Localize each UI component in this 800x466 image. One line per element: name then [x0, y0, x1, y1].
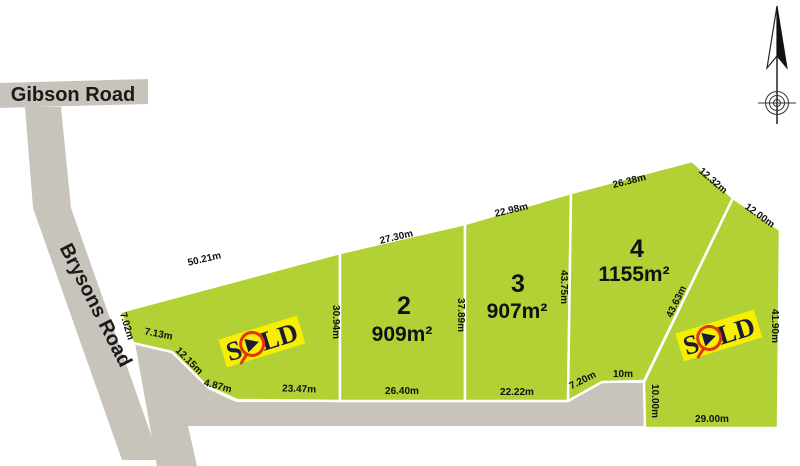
lot-2-area: 909m²	[372, 323, 433, 346]
gibson-road-label: Gibson Road	[11, 84, 135, 106]
lot1-dim-bottom: 23.47m	[282, 383, 316, 395]
lot-2-number: 2	[397, 292, 411, 320]
lot1-dim-top: 50.21m	[187, 250, 223, 268]
lot-3-area: 907m²	[487, 300, 548, 323]
lot5-dim-left: 10.00m	[649, 384, 660, 418]
lot4-dim-bottom: 10m	[613, 369, 633, 380]
lot2-dim-bottom: 26.40m	[385, 386, 419, 397]
lot3-dim-bottom: 22.22m	[500, 387, 534, 398]
lot5-dim-right: 41.90m	[769, 309, 780, 343]
subdivision-plan: Gibson Road Brysons Road 50.21m 7.02m 7.…	[0, 0, 800, 466]
lot-4-area: 1155m²	[598, 263, 669, 286]
lot-4-number: 4	[630, 235, 644, 263]
plan-canvas: Gibson Road Brysons Road 50.21m 7.02m 7.…	[0, 0, 800, 466]
lot2-dim-right: 37.89m	[455, 298, 466, 332]
lot5-dim-bottom: 29.00m	[695, 414, 729, 425]
lot1-dim-right: 30.94m	[330, 305, 341, 339]
lot-3-number: 3	[511, 270, 525, 298]
lot3-dim-right: 43.75m	[558, 270, 569, 304]
